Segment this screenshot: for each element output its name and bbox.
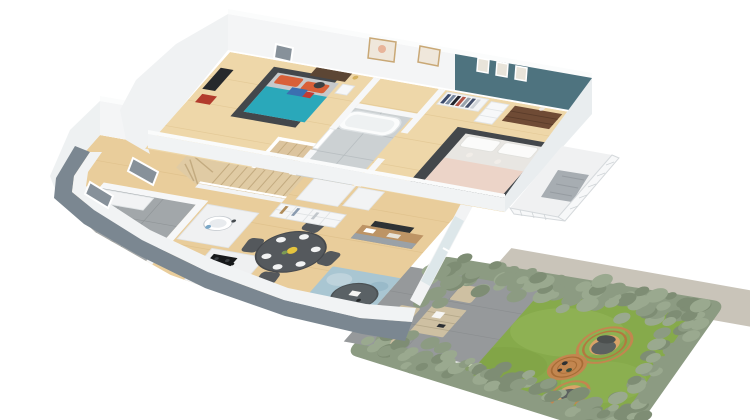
- art-motif: [378, 45, 386, 53]
- framed-art: [496, 62, 508, 77]
- framed-art: [515, 66, 527, 81]
- framed-art: [477, 58, 489, 73]
- floorplan-canvas: [0, 0, 750, 420]
- wall-window: [274, 44, 293, 62]
- tile-joints-shape: [40, 254, 137, 271]
- framed-art: [418, 46, 440, 66]
- floorplan-render: [0, 0, 750, 420]
